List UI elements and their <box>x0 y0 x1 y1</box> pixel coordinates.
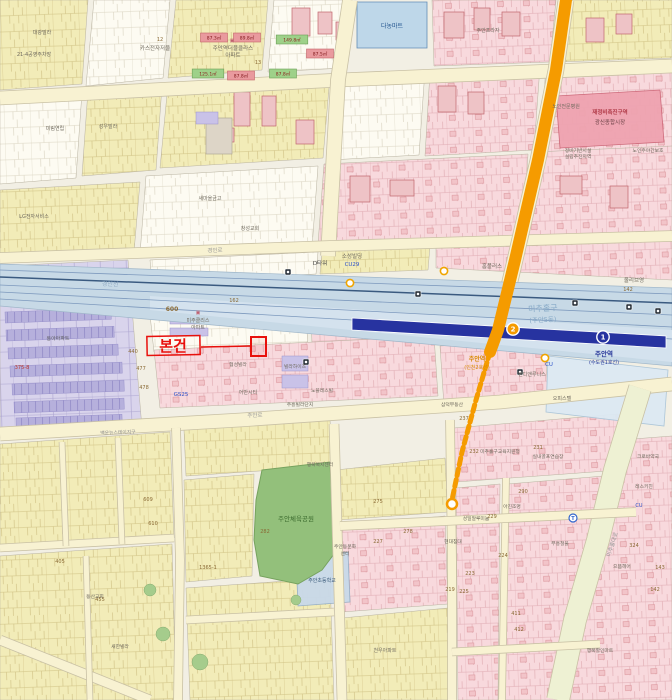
parcel-block <box>556 0 672 62</box>
parcel-number: 411 <box>511 611 521 617</box>
station-exit-glyph <box>305 361 307 363</box>
subject-leader-line <box>201 346 251 347</box>
bus-stop-marker <box>346 279 353 286</box>
parcel-number: 143 <box>655 565 665 571</box>
map-label: 미주클리스 <box>186 317 209 324</box>
map-label: 설립추진지역 <box>565 153 591 160</box>
parcel-block <box>140 166 318 254</box>
map-label: 센터 <box>341 550 350 557</box>
station-exit-glyph <box>657 310 659 312</box>
map-label: 아진조명 <box>503 503 521 510</box>
area-chip-value: 87.8㎡ <box>276 71 291 78</box>
map-label: ▣ <box>196 310 201 316</box>
parcel-block <box>184 474 254 582</box>
parcel-number: 275 <box>373 499 383 505</box>
map-label: 오피스텔 <box>553 395 572 402</box>
road <box>450 420 452 700</box>
map-label: D타워 <box>313 259 327 267</box>
parcel-number: 232 <box>469 449 479 455</box>
parcel-number: 231 <box>533 445 543 451</box>
map-label: 대광빌라 <box>33 29 52 36</box>
map-label: 빌라하이츠 <box>284 363 307 370</box>
station-badge-number: 1 <box>601 333 606 341</box>
parcel-number: 142 <box>650 587 660 593</box>
map-label: 삼덕부동산 <box>441 401 464 408</box>
map-label: 광신종합시장 <box>595 118 625 126</box>
building <box>616 14 632 34</box>
map-label: 미추홀구 <box>528 302 558 314</box>
map-label: 반디앤루니스 <box>518 371 546 378</box>
map-label: (인천2호선) <box>464 364 490 371</box>
parcel-number: 405 <box>55 559 65 565</box>
parcel-number: 227 <box>373 539 383 545</box>
map-label: 레스키친 <box>635 483 653 490</box>
parcel-block <box>342 608 450 700</box>
map-label: 노인주야간보호 <box>633 147 664 154</box>
parcel-number: 1365-1 <box>199 565 217 571</box>
map-label: 노인전문병원 <box>552 103 580 110</box>
apartment-building <box>196 112 218 124</box>
parcel-number: 162 <box>229 298 239 304</box>
map-label: 부흥철물 <box>551 540 569 547</box>
map-label: 으뜸헤어 <box>613 563 631 570</box>
green-patch <box>192 654 208 670</box>
building <box>468 92 484 114</box>
parcel-number: 219 <box>445 587 455 593</box>
parcel-block <box>528 146 672 240</box>
map-label: 협성빌라 <box>229 361 247 368</box>
map-viewport: 12T 87.3㎡89.8㎡149.8㎡87.5㎡125.1㎡87.8㎡87.8… <box>0 0 672 700</box>
map-label: 주안동문화 <box>334 543 357 550</box>
parcel-block <box>318 154 528 244</box>
map-label: 실내골프연습장 <box>533 453 564 460</box>
map-label: 소성빌딩 <box>342 252 362 260</box>
station-exit-glyph <box>628 306 630 308</box>
map-label: 홈플러스 <box>482 262 502 270</box>
parcel-number: 13 <box>255 60 261 66</box>
station-exit-glyph <box>417 293 419 295</box>
parcel-number: 237 <box>459 416 469 422</box>
bus-stop-marker <box>541 354 548 361</box>
building <box>438 86 456 112</box>
map-label: 주안초등학교 <box>308 577 336 584</box>
map-label: 새마을금고 <box>198 195 221 202</box>
map-label: (주안5동) <box>529 314 557 324</box>
map-label: 성우빌라 <box>99 123 118 130</box>
map-label: GS25 <box>174 392 189 398</box>
map-label: 어반시티 <box>239 389 257 396</box>
map-label: 주안체육공원 <box>278 514 314 523</box>
station-exit-glyph <box>574 302 576 304</box>
taxi-marker-letter: T <box>571 516 575 522</box>
park-area <box>254 462 334 584</box>
parcel-number: 610 <box>148 521 158 527</box>
road <box>334 424 342 700</box>
map-label: 노블레스빌 <box>311 387 333 394</box>
green-patch <box>144 584 156 596</box>
map-label: CU <box>635 503 642 509</box>
map-label: 미림연립 <box>46 125 64 132</box>
parcel-number: 375-8 <box>15 365 30 371</box>
parcel-number: 440 <box>128 349 138 355</box>
map-label: 동아아파트 <box>46 335 70 342</box>
parcel-block <box>0 92 82 184</box>
area-chip-value: 89.8㎡ <box>240 35 255 42</box>
map-label: 아파트 <box>225 51 240 59</box>
map-label: 행복할인마트 <box>587 647 614 654</box>
building <box>350 176 370 202</box>
building <box>610 186 628 208</box>
bus-stop-marker <box>440 267 447 274</box>
road <box>176 428 180 700</box>
parcel-number: 600 <box>166 306 179 313</box>
subject-label: 본건 <box>159 337 187 355</box>
building <box>296 120 314 144</box>
parcel-block <box>0 432 174 550</box>
parcel-number: 609 <box>143 497 153 503</box>
map-label: 행복복지센터 <box>307 461 333 468</box>
redevelopment-zone <box>556 90 664 148</box>
parcel-number: 142 <box>623 287 633 293</box>
map-label: 주안역 <box>595 349 613 358</box>
station-badge-number: 2 <box>511 325 516 333</box>
map-label: 주안로 <box>247 412 262 420</box>
parcel-number: 290 <box>518 489 528 495</box>
parcel-number: 412 <box>514 627 524 633</box>
map-label: 새한빌라 <box>111 643 129 650</box>
area-chip-value: 87.3㎡ <box>207 35 222 42</box>
area-chip-value: 125.1㎡ <box>199 71 217 78</box>
map-label: 주안역 <box>469 355 486 363</box>
map-label: 크로바약국 <box>637 453 660 460</box>
building <box>502 12 520 36</box>
map-label: CU29 <box>345 262 360 268</box>
map-label: (수도권1호선) <box>589 359 619 366</box>
parcel-number: 282 <box>260 529 270 535</box>
building <box>560 176 582 194</box>
map-label: 성일알루미늄 <box>463 515 490 522</box>
map-label: 동산교회 <box>86 593 104 600</box>
map-label: 주안프라자 <box>476 27 499 34</box>
building <box>474 8 490 30</box>
map-label: 창성교회 <box>241 225 259 232</box>
map-label: 천우아파트 <box>373 647 396 654</box>
map-label: 카스전자저울 <box>140 44 170 52</box>
parcel-block <box>86 0 170 86</box>
map-label: 아파트 <box>191 324 205 331</box>
parcel-number: 12 <box>157 37 163 43</box>
parcel-number: 278 <box>403 529 413 535</box>
area-chip-value: 149.8㎡ <box>283 37 301 44</box>
map-label: CU <box>545 362 553 368</box>
building <box>318 12 332 34</box>
map-label: 경인선 <box>102 280 119 289</box>
parcel-block <box>338 516 448 612</box>
building <box>234 92 250 126</box>
map-label: 올리브영 <box>624 276 644 284</box>
parcel-number: 324 <box>629 543 639 549</box>
map-label: 21-4공영주차장 <box>17 51 52 58</box>
green-patch <box>156 627 170 641</box>
parcel-block <box>336 458 448 520</box>
parcel-number: 477 <box>136 366 146 372</box>
map-label: 경인로 <box>207 247 222 254</box>
building <box>262 96 276 126</box>
station-exit-glyph <box>287 271 289 273</box>
building <box>444 12 464 38</box>
green-patch <box>291 595 301 605</box>
map-label: 정비기반시설 <box>565 147 591 154</box>
map-label: ▣ <box>230 38 235 44</box>
map-label: 다농마트 <box>381 22 404 30</box>
area-chip-value: 87.8㎡ <box>234 73 249 80</box>
map-label: 주흥빌라단지 <box>287 401 313 408</box>
subject-parcel-outline <box>251 337 266 356</box>
map-label: 주안역더블클라스 <box>213 44 253 52</box>
building <box>586 18 604 42</box>
parcel-block <box>0 0 88 90</box>
parcel-number: 223 <box>465 571 475 577</box>
cadastral-map: 12T 87.3㎡89.8㎡149.8㎡87.5㎡125.1㎡87.8㎡87.8… <box>0 0 672 700</box>
parcel-number: 478 <box>139 385 149 391</box>
road <box>502 478 506 700</box>
map-label: 재정비촉진구역 <box>592 108 627 116</box>
parcel-number: 225 <box>459 589 469 595</box>
apartment-building <box>282 375 308 388</box>
map-label: 미추홀구교육지원청 <box>480 448 520 455</box>
map-label: LG전자서비스 <box>19 213 49 220</box>
parcel-number: 224 <box>498 553 508 559</box>
line2-endpoint <box>447 499 457 509</box>
building <box>292 8 310 36</box>
map-label: 현대침대 <box>444 538 462 545</box>
building <box>390 180 414 196</box>
area-chip-value: 87.5㎡ <box>313 51 328 58</box>
